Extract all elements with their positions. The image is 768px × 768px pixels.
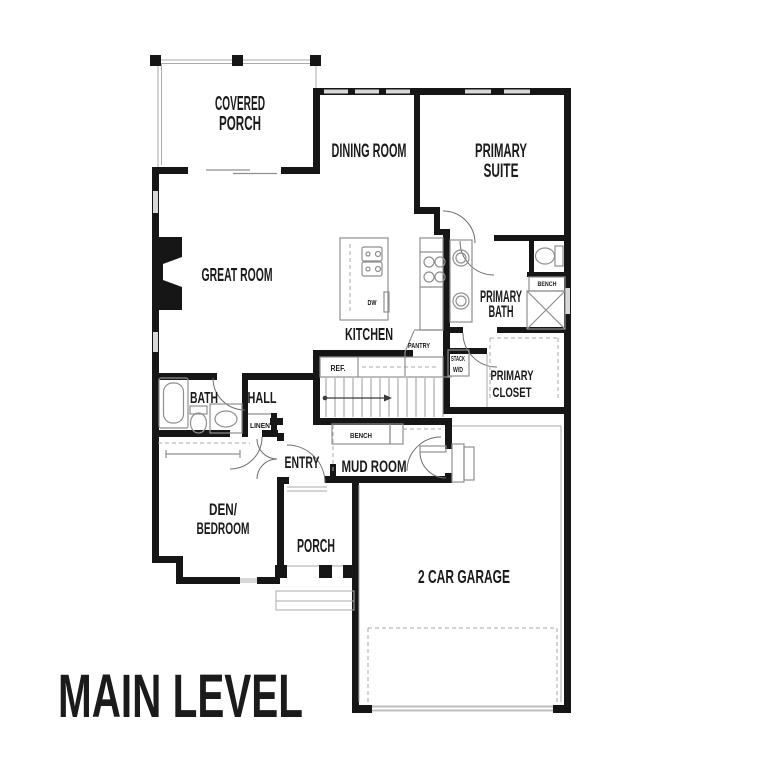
kitchen-label: KITCHEN (345, 324, 393, 344)
porch-post (319, 565, 332, 578)
garage-entry-door-leaf (420, 446, 446, 452)
window (386, 90, 410, 94)
den-closet (158, 443, 250, 458)
primary-suite-label-line2: SUITE (484, 161, 519, 182)
stack-wd-label-line1: STACK (451, 356, 465, 363)
range-burner (424, 257, 434, 267)
den-double-door (257, 459, 277, 479)
pantry-label: PANTRY (408, 341, 430, 350)
stair-direction-start (323, 396, 328, 401)
primary-closet-label-line2: CLOSET (493, 384, 532, 400)
window (504, 90, 530, 94)
kitchen-island (340, 238, 389, 320)
bath-bench-label: BENCH (538, 281, 557, 288)
sink (453, 250, 469, 266)
den-bedroom-label-line2: BEDROOM (197, 519, 250, 538)
bath-label: BATH (190, 390, 218, 407)
garage-steps (464, 447, 474, 480)
porch-steps (276, 591, 354, 601)
fireplace (154, 237, 182, 310)
garage-steps (452, 444, 464, 482)
toilet-tank (555, 246, 563, 266)
range-burner (424, 272, 434, 282)
stack-wd-label-line2: W/D (453, 367, 463, 374)
entry-label: ENTRY (285, 453, 320, 472)
covered-porch-label-line1: COVERED (215, 93, 265, 115)
room-labels: COVERED PORCH DINING ROOM PRIMARY SUITE … (190, 93, 557, 587)
dining-room-label: DINING ROOM (332, 141, 407, 162)
double-vanity (450, 240, 472, 322)
great-room-label: GREAT ROOM (202, 265, 273, 285)
sink (453, 293, 469, 309)
porch-post (275, 565, 287, 578)
window (355, 90, 379, 94)
floor-plan-page: COVERED PORCH DINING ROOM PRIMARY SUITE … (0, 0, 768, 768)
primary-bath-door (460, 241, 494, 275)
mud-bench-label: BENCH (350, 433, 372, 440)
range-counter (420, 238, 445, 330)
mud-room-label: MUD ROOM (342, 457, 407, 476)
den-bedroom-label-line1: DEN/ (209, 500, 237, 519)
stair-direction-arrow (384, 395, 392, 402)
window (566, 288, 571, 314)
window (240, 578, 257, 583)
porch-post (150, 55, 161, 66)
porch-post (310, 55, 321, 66)
primary-closet-label-line1: PRIMARY (491, 367, 534, 383)
sink-bowl (362, 247, 382, 261)
den-double-door (257, 439, 277, 459)
linen-label: LINEN (250, 423, 270, 430)
porch-post (343, 565, 353, 578)
hall-label: HALL (248, 390, 277, 407)
porch-steps (276, 601, 354, 610)
floor-plan-drawing: COVERED PORCH DINING ROOM PRIMARY SUITE … (0, 0, 768, 768)
sink-bowl (362, 262, 382, 276)
primary-bath-label-line2: BATH (489, 302, 514, 321)
sink (215, 411, 237, 427)
primary-suite-label-line1: PRIMARY (475, 141, 527, 162)
window (465, 90, 491, 94)
plan-title: MAIN LEVEL (58, 662, 303, 730)
toilet-bowl (536, 248, 555, 264)
window (153, 332, 158, 352)
dishwasher-label: DW (368, 300, 377, 307)
covered-porch-label-line2: PORCH (219, 113, 261, 135)
porch-post (232, 55, 243, 66)
refrigerator-label: REF. (331, 364, 346, 373)
staircase (322, 377, 452, 417)
garage-label: 2 CAR GARAGE (418, 566, 510, 587)
window (153, 191, 158, 213)
doors (213, 211, 497, 483)
window (324, 90, 348, 94)
garage-entry-door (420, 452, 446, 478)
porch-label: PORCH (297, 536, 335, 556)
